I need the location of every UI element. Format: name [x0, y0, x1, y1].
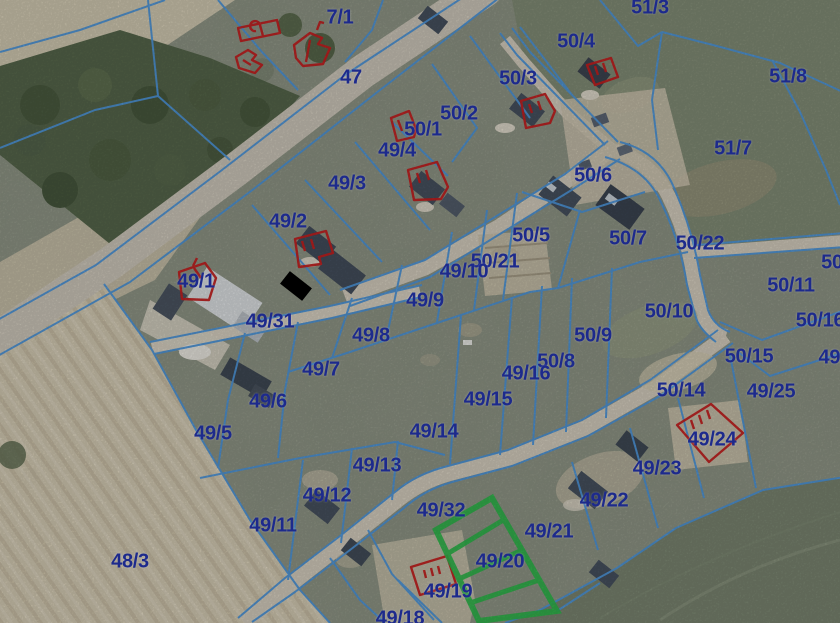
- noise-overlay-light: [0, 0, 840, 623]
- map-canvas: [0, 0, 840, 623]
- cadastral-map: 7/14751/350/450/351/850/250/149/451/750/…: [0, 0, 840, 623]
